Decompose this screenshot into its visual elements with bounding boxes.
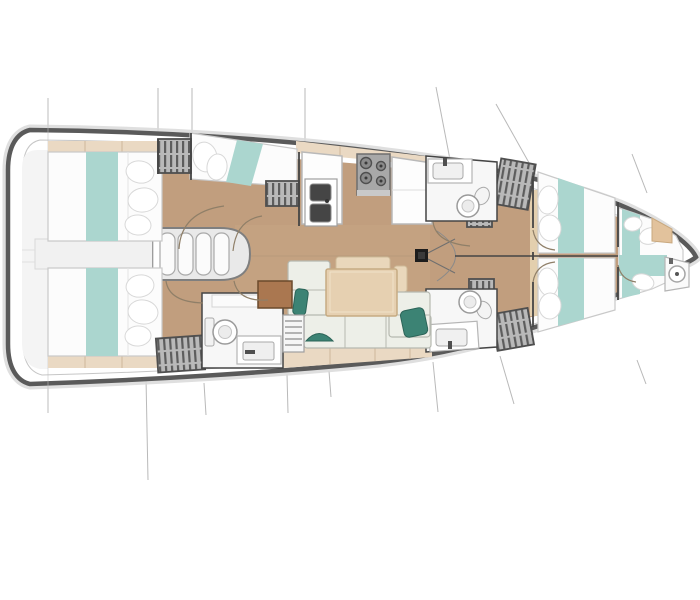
- rigging-line: [433, 362, 438, 412]
- forepeak-cabin: [619, 208, 689, 299]
- rigging-line: [500, 356, 514, 404]
- sink-basin: [310, 184, 331, 201]
- forward-cabin-starboard: [536, 258, 615, 332]
- wardrobe: [158, 139, 191, 173]
- section-line: [329, 371, 331, 397]
- berth-runner-teal: [86, 268, 118, 356]
- stove-front: [357, 190, 390, 196]
- toilet-bowl-inner: [462, 200, 474, 212]
- sink-basin: [433, 163, 463, 179]
- head-forward-starboard: [426, 289, 497, 352]
- wardrobe: [156, 335, 205, 372]
- berth-runner-teal: [86, 152, 118, 241]
- faucet: [669, 258, 673, 264]
- faucet: [245, 350, 255, 354]
- faucet: [443, 158, 447, 166]
- toilet-bowl-inner: [219, 326, 232, 339]
- head-forward-port: [426, 156, 497, 221]
- forward-cabin-port: [536, 172, 615, 253]
- section-line: [204, 383, 206, 415]
- faucet: [448, 341, 452, 349]
- sink-basin: [310, 204, 331, 222]
- drain: [675, 272, 679, 276]
- cockpit-passage: [35, 239, 153, 269]
- dining-table: [326, 269, 397, 316]
- berth-runner-cross: [619, 255, 667, 276]
- rigging-line: [637, 360, 646, 384]
- slatted-seat: [283, 315, 304, 352]
- berth-runner-teal: [558, 178, 584, 253]
- boat-floorplan: [0, 0, 700, 600]
- mast-core: [418, 252, 425, 259]
- faucet: [325, 199, 329, 203]
- stair-tread: [214, 233, 229, 275]
- aft-cabin-starboard: [48, 268, 162, 356]
- section-line: [146, 378, 148, 480]
- bow-washbasin: [665, 257, 689, 291]
- wardrobe: [266, 181, 299, 206]
- stair-tread: [196, 233, 211, 275]
- toilet-bowl-inner: [464, 296, 476, 308]
- teal-pillow: [400, 307, 429, 338]
- rigging-line: [632, 154, 647, 193]
- head-shelf: [212, 295, 258, 307]
- wardrobe: [493, 158, 535, 209]
- ottoman: [258, 281, 292, 308]
- berth-runner-teal: [558, 258, 584, 326]
- section-line: [287, 374, 288, 413]
- shelf-strip: [48, 355, 160, 368]
